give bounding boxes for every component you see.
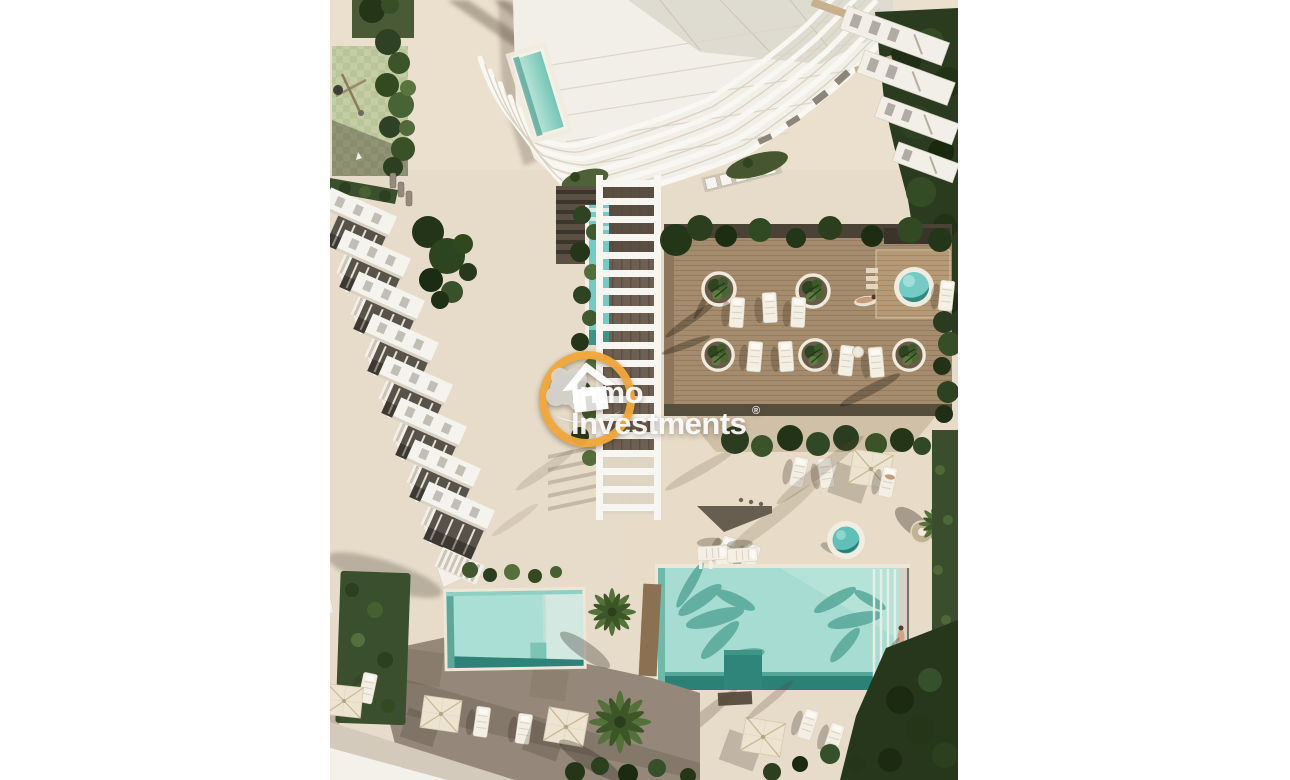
grass-tuft (935, 465, 945, 475)
jacuzzi-highlight (836, 530, 846, 540)
right-margin (958, 0, 1290, 780)
tree-blob (648, 759, 666, 777)
side-table (853, 347, 864, 358)
pergola-slat (596, 306, 661, 313)
pool-step-edge (724, 650, 762, 655)
bush-blob (399, 120, 415, 136)
tree-blob (431, 291, 449, 309)
tree-blob (751, 435, 773, 457)
tree-blob (806, 432, 830, 456)
pool-sun-shelf (544, 590, 583, 667)
pergola-slat (596, 342, 661, 349)
tree-blob (897, 217, 923, 243)
plant-blob (570, 242, 590, 262)
tree-blob (818, 216, 842, 240)
tree-blob (933, 357, 951, 375)
splash-blob (551, 368, 569, 386)
small-pool (443, 587, 586, 671)
registered-symbol: ® (752, 405, 760, 417)
bush-blob (743, 158, 753, 168)
bush-blob (528, 569, 542, 583)
bush-blob (570, 172, 580, 182)
palm-tree (588, 588, 636, 636)
palm-tree (589, 691, 651, 753)
bush-blob (400, 80, 416, 96)
bush-blob (504, 564, 520, 580)
pergola-slat (596, 252, 661, 259)
paving-mat (529, 667, 569, 702)
balcony-cell (705, 176, 718, 189)
plant-blob (571, 333, 589, 351)
tree-blob (932, 742, 958, 768)
tree-blob (928, 228, 952, 252)
tree-blob (935, 405, 953, 423)
tree-blob (777, 425, 803, 451)
round-planter (703, 273, 735, 305)
grass-tuft (933, 565, 943, 575)
pergola-slat (596, 270, 661, 277)
shadow-slat (556, 200, 600, 204)
tree-blob (878, 748, 902, 772)
bollard-dot (749, 500, 753, 504)
plant-blob (573, 206, 591, 224)
playground-item (358, 110, 364, 116)
bollard-dot (739, 498, 743, 502)
splash-blob (546, 386, 566, 406)
pergola-slat (596, 180, 661, 187)
pool-coping-top (656, 564, 910, 568)
pergola-slat (596, 234, 661, 241)
pool-step-block (724, 650, 762, 690)
hedge-texture (351, 633, 365, 647)
tree-blob (847, 755, 865, 773)
tree-blob (792, 756, 808, 772)
bollard (390, 173, 396, 188)
bush-blob (550, 566, 562, 578)
bush-blob (483, 568, 497, 582)
tree-blob (906, 177, 936, 207)
tree-blob (933, 311, 955, 333)
hedge-texture (345, 583, 359, 597)
playground-item (333, 85, 343, 95)
bollard-dot (759, 502, 763, 506)
watermark-line2: Investments (571, 406, 746, 441)
tree-blob (861, 225, 883, 247)
tree-blob (591, 757, 609, 775)
aerial-property-rendering: Inmo Investments ® (0, 0, 1290, 780)
tree-blob (886, 686, 914, 714)
tree-blob (687, 215, 713, 241)
person-head (899, 626, 904, 631)
render-canvas: Inmo Investments ® (0, 0, 1290, 780)
bush-blob (359, 186, 371, 198)
platform-step (866, 276, 878, 281)
tree-blob (453, 234, 473, 254)
pergola-slat (596, 324, 661, 331)
platform-step (866, 284, 878, 289)
tree-blob (918, 668, 942, 692)
deck-left-edge (664, 238, 674, 406)
tree-blob (748, 218, 772, 242)
pergola-slat (596, 468, 661, 475)
round-planter (800, 340, 830, 370)
pool-left-shade (446, 592, 454, 668)
tree-blob (715, 225, 737, 247)
bush-blob (462, 562, 478, 578)
tree-blob (459, 263, 477, 281)
platform-step (866, 268, 878, 273)
tree-blob (820, 744, 840, 764)
pergola-slat (596, 504, 661, 511)
bush-blob (379, 116, 401, 138)
tree-blob (419, 268, 443, 292)
bush-blob (388, 52, 410, 74)
pergola-slat (596, 198, 661, 205)
tree-blob (913, 437, 931, 455)
plant-blob (573, 286, 591, 304)
hedge-texture (377, 652, 393, 668)
bush-blob (379, 190, 391, 202)
bollard (406, 191, 412, 206)
pergola-slat (596, 288, 661, 295)
hedge-texture (367, 602, 383, 618)
hedge-texture (381, 699, 395, 713)
shadow-slat (556, 190, 600, 194)
tree-blob (786, 228, 806, 248)
round-planter (894, 340, 924, 370)
left-margin (0, 0, 330, 780)
grass-tuft (943, 515, 953, 525)
watermark-line1: Inmo (571, 375, 643, 410)
tree-blob (890, 428, 914, 452)
tree-blob (905, 715, 935, 745)
pergola-slat (596, 216, 661, 223)
pergola-slat (596, 450, 661, 457)
bush-blob (388, 92, 414, 118)
bollard (398, 182, 404, 197)
pergola-slat (596, 486, 661, 493)
round-planter (703, 340, 733, 370)
jacuzzi-highlight (903, 275, 915, 287)
bush-blob (375, 29, 401, 55)
plant-blob (582, 310, 598, 326)
tree-blob (937, 381, 959, 403)
